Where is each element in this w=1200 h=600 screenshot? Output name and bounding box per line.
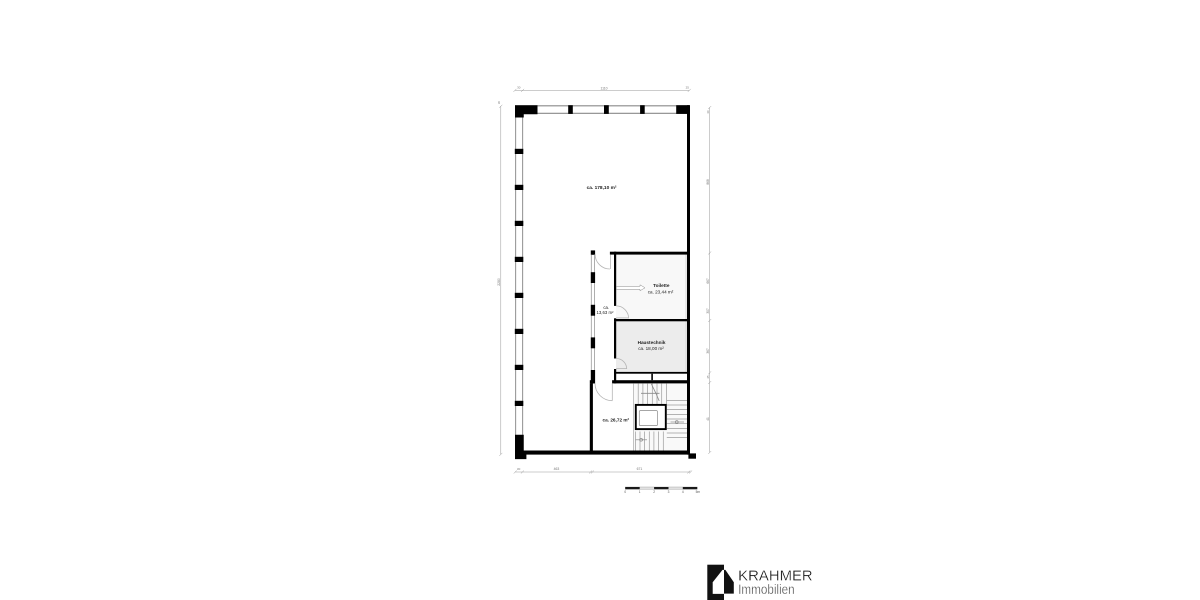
- svg-text:868: 868: [706, 179, 710, 185]
- svg-text:30: 30: [517, 86, 521, 90]
- svg-text:ca. 178,10 m²: ca. 178,10 m²: [587, 185, 617, 191]
- svg-text:367: 367: [706, 348, 710, 354]
- svg-text:1110: 1110: [600, 86, 607, 90]
- svg-text:13,63 m²: 13,63 m²: [597, 310, 615, 315]
- svg-text:3: 3: [668, 490, 670, 494]
- svg-text:Toilette: Toilette: [653, 283, 670, 288]
- svg-text:671: 671: [637, 467, 643, 471]
- svg-text:Immobilien: Immobilien: [738, 581, 795, 597]
- svg-text:307: 307: [706, 308, 710, 314]
- svg-text:667: 667: [706, 278, 710, 284]
- svg-text:41: 41: [706, 417, 710, 421]
- svg-text:0: 0: [624, 490, 626, 494]
- svg-text:30: 30: [706, 110, 710, 114]
- svg-text:5m: 5m: [696, 490, 701, 494]
- svg-text:1: 1: [639, 490, 641, 494]
- svg-text:2280: 2280: [497, 278, 501, 286]
- svg-text:2: 2: [653, 490, 655, 494]
- svg-text:30: 30: [517, 467, 521, 471]
- svg-text:45: 45: [706, 375, 710, 379]
- svg-text:25: 25: [686, 86, 690, 90]
- svg-text:ca. 18,00 m²: ca. 18,00 m²: [638, 346, 664, 351]
- svg-text:463: 463: [554, 467, 560, 471]
- svg-text:ca. 23,44 m²: ca. 23,44 m²: [648, 290, 674, 295]
- svg-text:4: 4: [682, 490, 684, 494]
- svg-text:Haustechnik: Haustechnik: [638, 340, 666, 345]
- svg-text:30: 30: [497, 101, 501, 105]
- svg-text:ca. 26,72 m²: ca. 26,72 m²: [603, 418, 630, 423]
